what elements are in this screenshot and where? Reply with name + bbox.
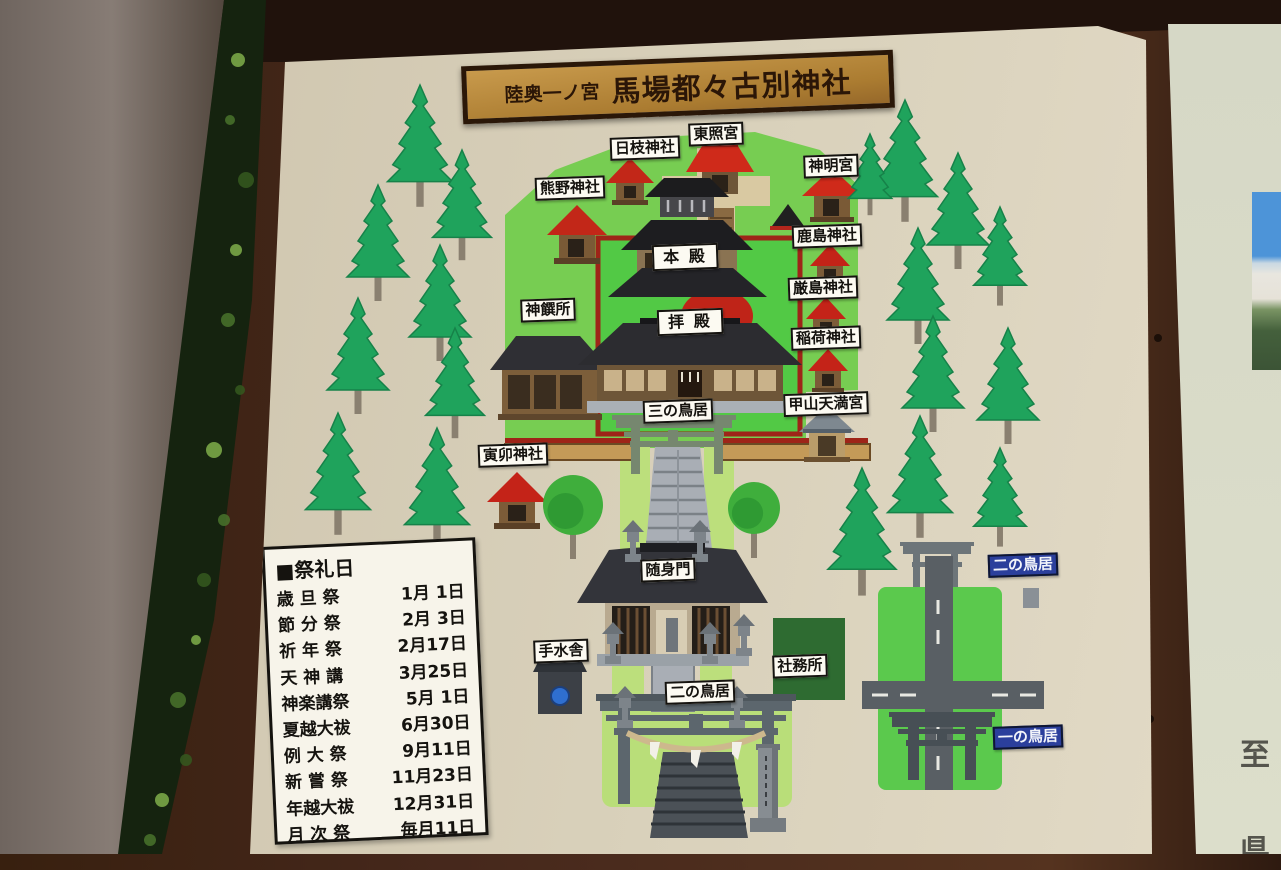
festival-name: 節 分 祭 [277,611,341,640]
map-label-sanno-torii: 三の鳥居 [643,398,714,423]
festival-name: 新 嘗 祭 [285,768,349,797]
map-label-zuishinmon: 随身門 [640,558,696,583]
festival-name: 月 次 祭 [287,820,351,849]
map-label-kumano-jinja: 熊野神社 [535,175,606,200]
festival-date: 3月25日 [398,657,469,686]
map-label-shamusho: 社務所 [772,654,828,679]
festival-date: 11月23日 [391,762,473,792]
map-label-kabusan-tenmangu: 甲山天満宮 [783,391,869,417]
festival-date: 毎月11日 [400,814,476,844]
festival-calendar: ■祭礼日 歳 旦 祭1月 1日節 分 祭2月 3日祈 年 祭2月17日天 神 講… [261,537,488,844]
map-label-inari-jinja: 稲荷神社 [791,325,862,350]
map-label-honden: 本 殿 [652,243,718,271]
festival-name: 夏越大祓 [282,715,351,744]
plaque-shrine-name: 馬場都々古別神社 [611,59,852,110]
festival-date: 12月31日 [392,788,474,818]
festival-name: 年越大祓 [286,794,355,823]
map-label-haiden: 拝 殿 [657,308,723,336]
festival-name: 祈 年 祭 [279,637,343,666]
screw [1154,334,1162,342]
festival-heading: ■祭礼日 [275,547,464,584]
festival-date: 6月30日 [401,710,472,739]
festival-name: 天 神 講 [280,663,344,692]
partial-direction-text: 至 県 [1240,730,1270,870]
festival-name: 神楽講祭 [281,689,350,718]
map-label-ichino-torii: 一の鳥居 [993,724,1064,749]
plaque-prefix: 陸奥一ノ宮 [504,77,600,108]
festival-date: 2月17日 [397,631,468,660]
festival-date: 1月 1日 [400,579,465,608]
festival-name: 例 大 祭 [283,742,347,771]
blossom-photo [1252,192,1281,370]
partial-char-bottom: 県 [1240,826,1270,870]
map-label-nino-torii-road: 二の鳥居 [988,552,1059,577]
festival-name: 歳 旦 祭 [276,585,340,614]
festival-date: 9月11日 [402,736,473,765]
festival-date: 5月 1日 [405,684,470,713]
map-label-toshogu: 東照宮 [688,122,744,147]
map-label-kashima-jinja: 鹿島神社 [792,223,863,248]
map-label-nino-torii: 二の鳥居 [665,679,736,704]
festival-date: 2月 3日 [402,605,467,634]
map-label-itsukushima-jinja: 厳島神社 [788,275,859,300]
map-label-torau-jinja: 寅卯神社 [478,442,549,467]
festival-rows: 歳 旦 祭1月 1日節 分 祭2月 3日祈 年 祭2月17日天 神 講3月25日… [276,579,476,849]
map-label-chozuya: 手水舎 [533,639,589,664]
map-label-shinsensho: 神饌所 [520,298,576,323]
map-label-hie-jinja: 日枝神社 [610,135,681,160]
partial-char-top: 至 [1240,730,1270,774]
map-label-shinmei-gu: 神明宮 [803,154,859,179]
